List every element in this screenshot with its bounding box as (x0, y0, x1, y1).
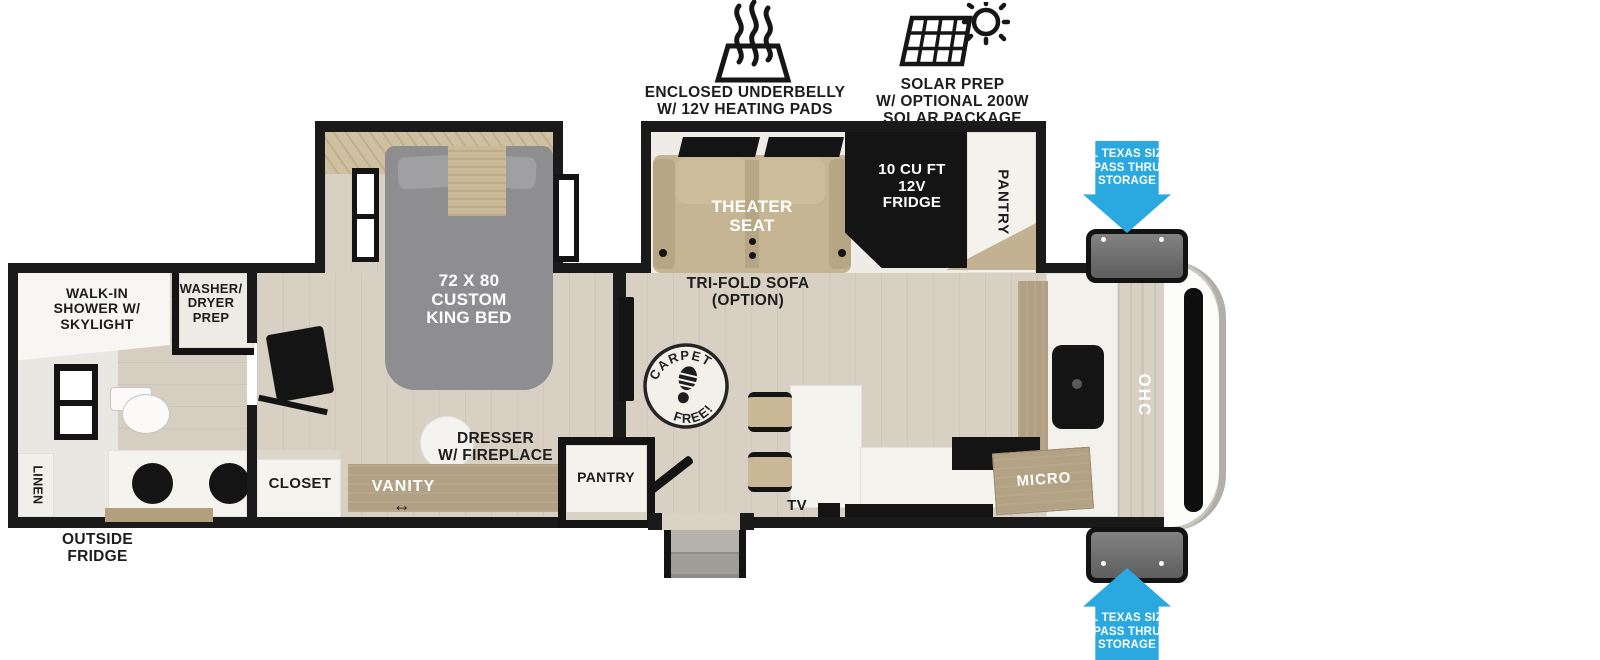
wall (247, 405, 257, 528)
step (671, 530, 739, 552)
wall (315, 121, 325, 273)
door-jamb (740, 513, 754, 530)
living-window (764, 137, 844, 157)
solar-prep-label: SOLAR PREP W/ OPTIONAL 200W SOLAR PACKAG… (855, 76, 1050, 127)
shower-label: WALK-IN SHOWER W/ SKYLIGHT (22, 286, 172, 332)
bathroom-window-pane (60, 371, 92, 400)
fridge-label: 10 CU FT 12V FRIDGE (858, 162, 966, 212)
theater-seat-label: THEATER SEAT (668, 198, 836, 235)
vanity-label: VANITY (356, 478, 451, 496)
bar-stool (748, 452, 792, 492)
outside-fridge-label: OUTSIDE FRIDGE (30, 531, 165, 565)
wall (641, 121, 651, 273)
sofa-leg (838, 249, 846, 257)
storage-latch (1101, 561, 1106, 566)
ohc-label: OHC (1135, 373, 1154, 417)
bathroom-sink (209, 463, 250, 504)
bathroom-sink (132, 463, 173, 504)
trifold-sofa-label: TRI-FOLD SOFA (OPTION) (658, 275, 838, 309)
hall-pantry-label: PANTRY (560, 470, 652, 485)
wall (249, 263, 325, 273)
linen-closet: LINEN (18, 453, 54, 517)
kitchen-faucet (1072, 379, 1082, 389)
sofa-leg (659, 249, 667, 257)
bathroom-window-pane (60, 406, 92, 434)
wall (1036, 121, 1046, 273)
storage-latch (1101, 237, 1106, 242)
king-bed-label: 72 X 80 CUSTOM KING BED (395, 272, 543, 328)
kitchen-cabinet (1018, 281, 1048, 463)
entertainment-tv-strip (845, 504, 993, 517)
wall (8, 263, 18, 528)
step (671, 554, 739, 574)
bedroom-window-pane (357, 219, 374, 257)
living-window (678, 137, 760, 157)
slide-pantry-label: PANTRY (993, 170, 1010, 236)
storage-latch (1159, 237, 1164, 242)
entry-steps (664, 528, 746, 578)
entry-threshold (655, 513, 748, 530)
bedroom-window-pane (357, 174, 374, 214)
pass-thru-storage-compartment (1086, 527, 1188, 583)
bedroom-window-pane (559, 180, 574, 256)
bedroom-tv-door-panel (266, 325, 335, 402)
storage-latch (1159, 561, 1164, 566)
toilet-bowl (122, 394, 170, 434)
front-window (1184, 288, 1203, 512)
heating-pads-icon (700, 0, 804, 84)
door-jamb (648, 513, 662, 530)
wall (8, 263, 257, 273)
washer-dryer-label: WASHER/ DRYER PREP (176, 282, 246, 325)
dresser-fireplace-label: DRESSER W/ FIREPLACE (418, 430, 573, 464)
kitchen-island (790, 385, 862, 508)
sofa-cupholder (749, 238, 756, 245)
rv-floorplan-diagram: ENCLOSED UNDERBELLY W/ 12V HEATING PADS … (0, 0, 1600, 660)
overhead-cabinet: OHC (1118, 273, 1170, 517)
wall (247, 263, 257, 343)
linen-label: LINEN (29, 466, 43, 505)
bed-blanket (448, 146, 506, 216)
closet-label: CLOSET (260, 476, 340, 493)
tv-label: TV (778, 498, 816, 515)
entertainment-tv (818, 503, 840, 517)
living-tv (619, 297, 634, 401)
storage-arrow-top: XL TEXAS SIZE PASS THRU STORAGE (1083, 141, 1171, 233)
sofa-cupholder (749, 252, 756, 259)
wall (315, 121, 563, 132)
vanity-door-arrow: ↔ (382, 496, 422, 516)
solar-prep-icon (898, 2, 1010, 78)
outside-fridge-compartment (105, 508, 213, 522)
bar-stool (748, 392, 792, 432)
wall (553, 263, 651, 273)
underbelly-label: ENCLOSED UNDERBELLY W/ 12V HEATING PADS (625, 84, 865, 118)
